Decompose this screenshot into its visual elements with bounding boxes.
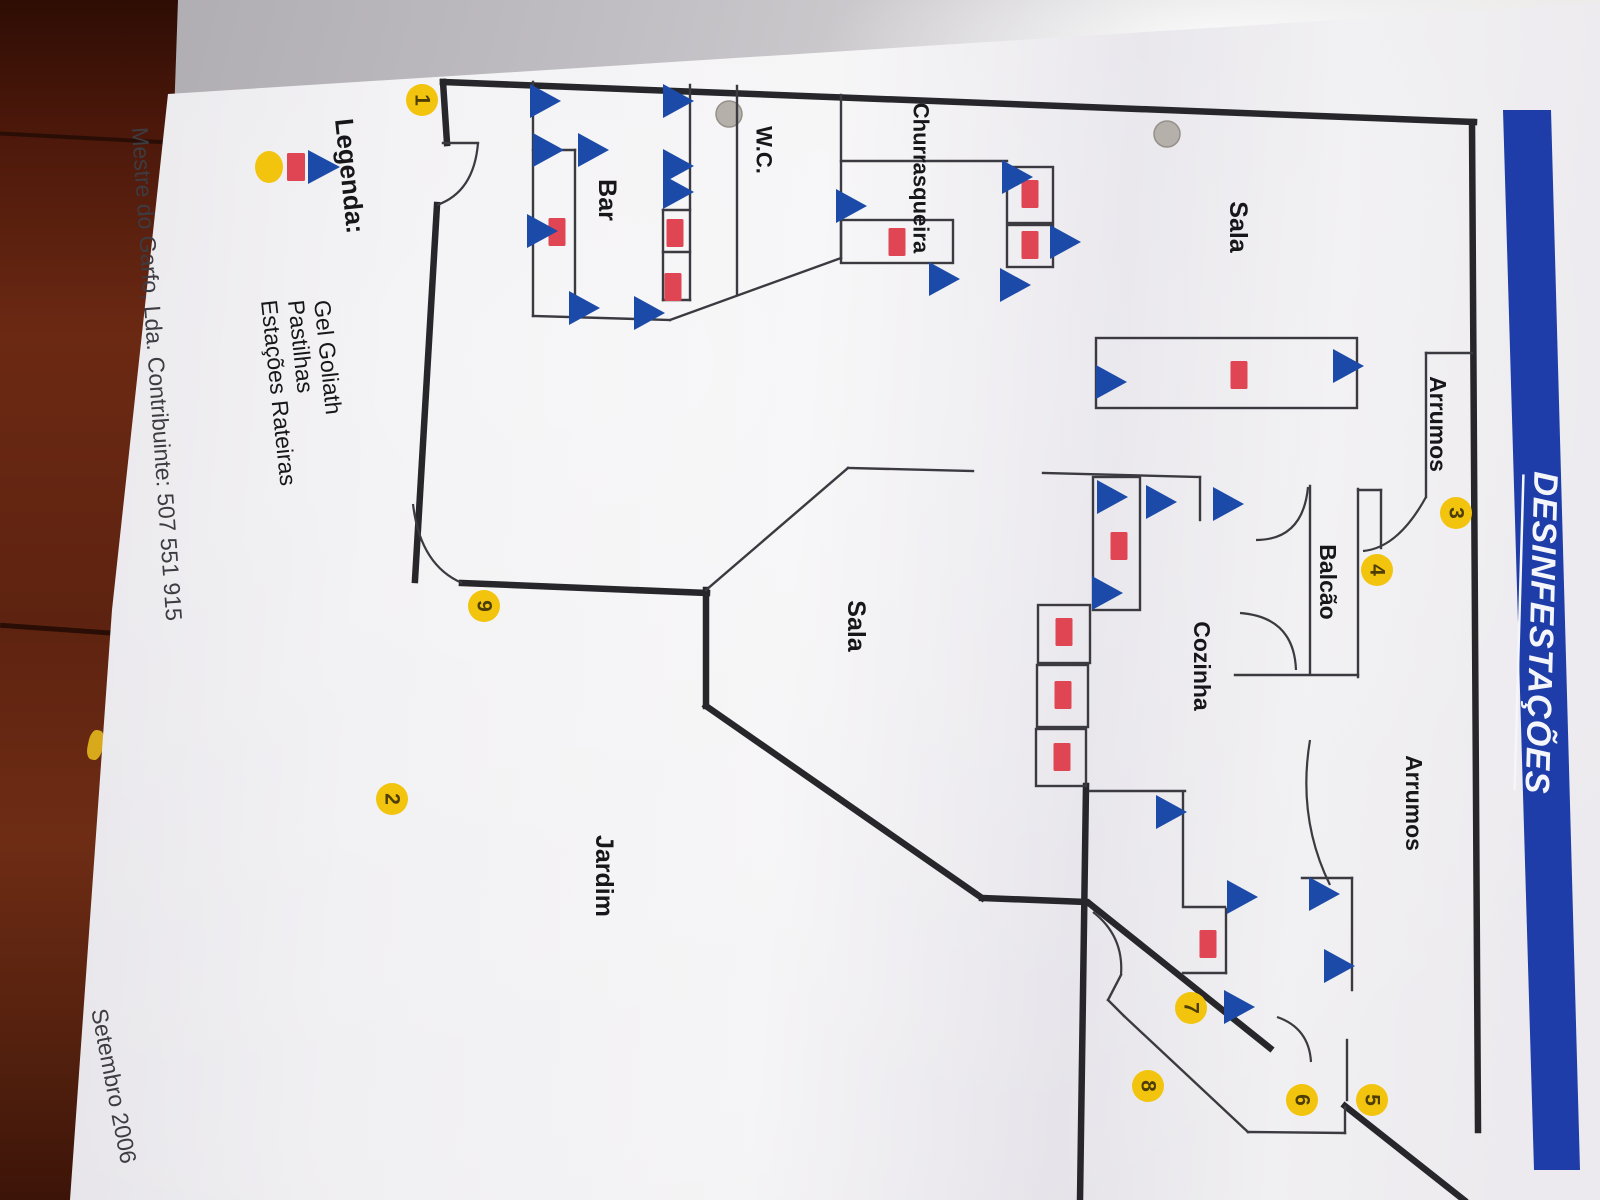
- room-label: Jardim: [590, 835, 618, 917]
- pastille-marker: [889, 228, 906, 256]
- station-number: 5: [1361, 1094, 1384, 1106]
- station-number: 9: [473, 600, 496, 612]
- pastille-marker: [1200, 930, 1217, 958]
- title-group: DESINFESTAÇÕES: [1514, 471, 1564, 795]
- pastille-marker: [1054, 743, 1071, 771]
- paper-sheen: [70, 3, 1600, 1200]
- station-number: 1: [411, 94, 434, 106]
- station-number: 7: [1180, 1002, 1203, 1014]
- pastille-marker: [665, 273, 682, 301]
- room-label: W.C.: [752, 126, 777, 174]
- room-label: Sala: [1224, 201, 1252, 254]
- wall-thin: [1248, 1132, 1345, 1133]
- station-number: 2: [381, 793, 404, 805]
- rectangle-icon: [287, 153, 305, 181]
- wall-thick: [982, 898, 1086, 902]
- floorplan-document: DESINFESTAÇÕESSalaArrumosBalcãoCozinhaAr…: [0, 0, 1600, 1200]
- pastille-marker: [1055, 681, 1072, 709]
- pastille-marker: [1111, 532, 1128, 560]
- pastille-marker: [1022, 231, 1039, 259]
- room-label: Churrasqueira: [909, 103, 934, 254]
- hole-punch: [1154, 121, 1180, 147]
- station-number: 4: [1366, 564, 1389, 576]
- room-label: Sala: [842, 600, 870, 653]
- room-label: Arrumos: [1401, 755, 1427, 851]
- room-label: Balcão: [1315, 544, 1341, 619]
- room-label: Arrumos: [1425, 376, 1451, 472]
- room-label: Bar: [593, 179, 621, 221]
- station-number: 6: [1291, 1094, 1314, 1106]
- pastille-marker: [1056, 618, 1073, 646]
- ellipse-icon: [255, 151, 283, 183]
- room-label: Cozinha: [1189, 621, 1215, 711]
- station-number: 3: [1445, 507, 1468, 519]
- pastille-marker: [1231, 361, 1248, 389]
- photographed-floorplan-scene: DESINFESTAÇÕESSalaArrumosBalcãoCozinhaAr…: [0, 0, 1600, 1200]
- pastille-marker: [667, 219, 684, 247]
- station-number: 8: [1137, 1080, 1160, 1092]
- wall-thick: [443, 82, 447, 143]
- pastille-marker: [1022, 180, 1039, 208]
